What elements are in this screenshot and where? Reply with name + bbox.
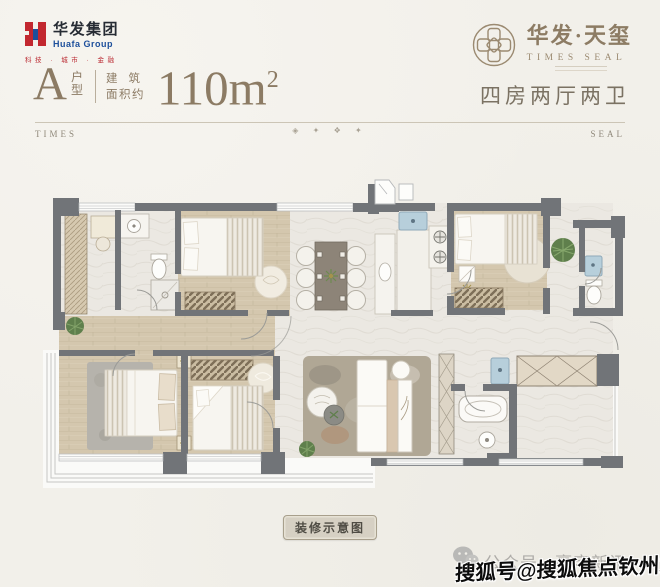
bathroom-right [585,256,602,304]
title-divider [95,70,96,103]
area-value: 110m2 [157,58,279,110]
sofa [357,360,412,452]
times-seal-logo: 华发·天玺 TIMES SEAL [471,18,632,71]
brand-right-name-en: TIMES SEAL [527,53,632,63]
area-label-line2: 面积约 [106,87,151,103]
plant-living [299,441,315,457]
area-label-line1: 建筑 [106,71,151,87]
plant-icon [66,317,84,335]
entry-zone [491,356,597,386]
dining-set [297,242,366,310]
unit-letter: A [33,62,67,106]
flue [375,180,413,204]
unit-title: A 户 型 建筑 面积约 110m2 [33,62,279,110]
closet-hall [439,354,454,454]
brand-left-name-cn: 华发集团 [53,22,119,37]
poster: 华发集团 Huafa Group 科技 · 城市 · 金融 华发·天玺 TIME… [0,0,660,587]
chinese-knot-icon [471,22,517,68]
huafa-logo-icon [25,22,46,46]
caption-pill: 装修示意图 [283,515,377,540]
plant-hall [551,238,575,262]
brand-left-name-en: Huafa Group [53,39,119,49]
unit-suffix-bottom: 型 [71,84,83,97]
floor-plan-image [35,170,625,515]
brand-right-name-cn: 华发·天玺 [527,18,632,50]
horizontal-rule [35,122,625,123]
layout-description: 四房两厅两卫 [480,80,630,110]
rule-ornaments: ◈ ✦ ❖ ✦ [0,126,660,135]
brand-right-small-tagline [555,66,607,71]
centerpiece-plant [324,269,338,283]
living-room [299,356,431,457]
